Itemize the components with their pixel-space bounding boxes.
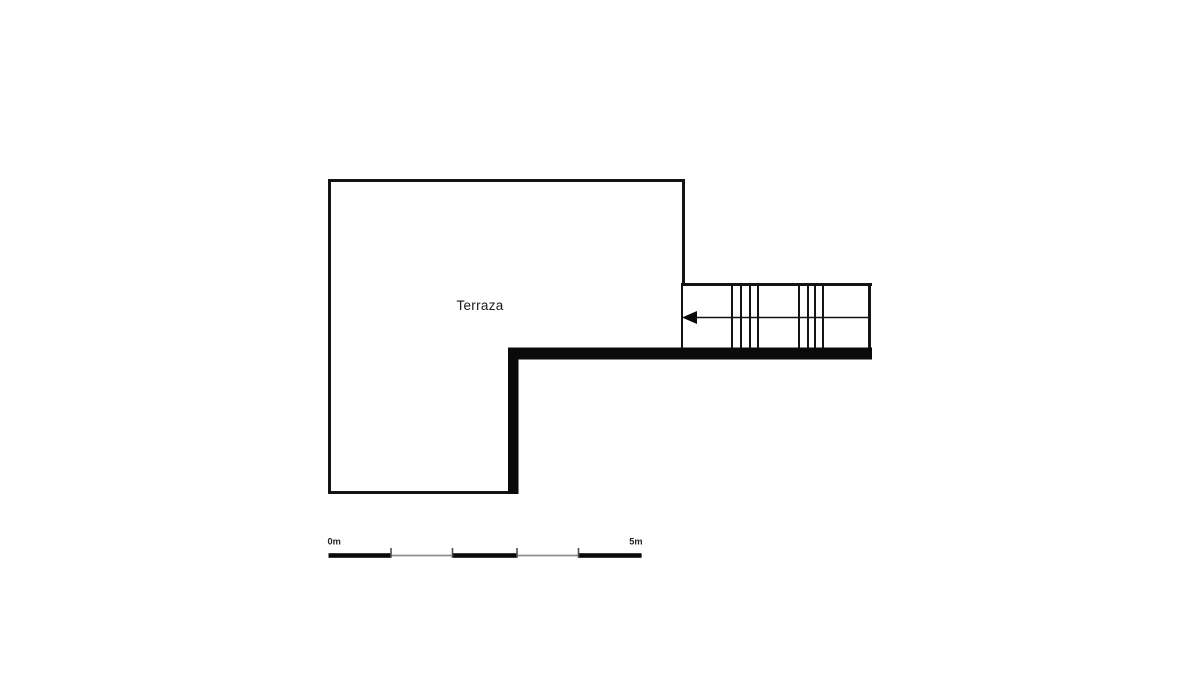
stair-arrow-head-icon (682, 311, 697, 324)
scale-bar: 0m 5m (328, 537, 643, 558)
scale-bar-segment (578, 553, 642, 558)
scale-bar-segment (453, 553, 518, 558)
stair-treads-group (732, 286, 823, 348)
wall-band-horizontal (508, 348, 872, 360)
floor-plan-page: Terraza 0m 5m (0, 0, 1200, 675)
scale-bar-end-label: 5m (629, 537, 642, 547)
wall-band-vertical (508, 348, 519, 495)
scale-bar-segment (329, 553, 392, 558)
scale-bar-start-label: 0m (328, 537, 341, 547)
stair-direction-arrow (682, 311, 869, 324)
floor-plan-canvas: Terraza 0m 5m (0, 0, 1200, 675)
room-label: Terraza (456, 298, 503, 313)
